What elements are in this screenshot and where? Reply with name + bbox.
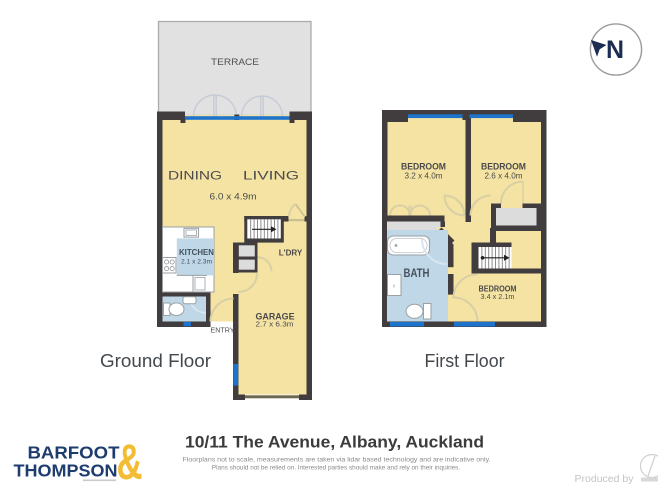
svg-text:3.2 x 4.0m: 3.2 x 4.0m (405, 172, 443, 181)
svg-text:2.6 x 4.0m: 2.6 x 4.0m (485, 172, 523, 181)
svg-text:&: & (117, 434, 143, 490)
svg-text:10/11 The Avenue, Albany, Auck: 10/11 The Avenue, Albany, Auckland (185, 433, 484, 452)
svg-text:Floorplans not to scale, measu: Floorplans not to scale, measurements ar… (183, 457, 491, 464)
svg-text:Ground Floor: Ground Floor (100, 351, 211, 371)
svg-text:First Floor: First Floor (425, 351, 505, 371)
svg-text:Produced by: Produced by (575, 473, 635, 485)
svg-text:DINING: DINING (168, 171, 222, 183)
svg-text:3.4 x 2.1m: 3.4 x 2.1m (481, 294, 515, 301)
svg-text:BEDROOM: BEDROOM (481, 162, 526, 172)
svg-text:ENTRY: ENTRY (211, 328, 235, 335)
svg-text:2.1 x 2.3m: 2.1 x 2.3m (181, 259, 212, 266)
svg-text:Plans should not be relied on.: Plans should not be relied on. Intereste… (212, 465, 461, 472)
svg-text:KITCHEN: KITCHEN (179, 247, 214, 257)
svg-text:N: N (606, 36, 624, 64)
svg-text:BEDROOM: BEDROOM (401, 162, 446, 172)
svg-text:L'DRY: L'DRY (279, 248, 303, 258)
svg-text:6.0 x 4.9m: 6.0 x 4.9m (210, 192, 257, 202)
svg-text:BATH: BATH (404, 268, 430, 280)
svg-text:TERRACE: TERRACE (211, 57, 259, 68)
svg-text:BEDROOM: BEDROOM (479, 285, 517, 294)
svg-text:2.7 x 6.3m: 2.7 x 6.3m (256, 322, 294, 329)
svg-text:BARFOOT: BARFOOT (28, 443, 120, 463)
svg-text:THOMPSON: THOMPSON (14, 461, 118, 481)
svg-text:LIVING: LIVING (243, 171, 299, 183)
